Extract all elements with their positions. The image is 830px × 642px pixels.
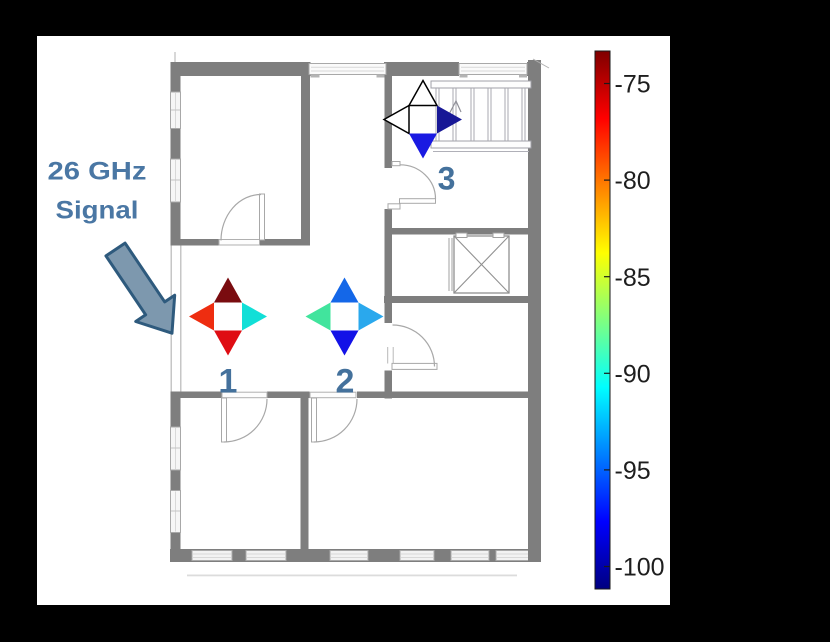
svg-text:-100: -100 [615, 554, 665, 582]
svg-text:26 GHz: 26 GHz [48, 158, 147, 186]
svg-text:2: 2 [336, 362, 355, 400]
svg-text:-75: -75 [615, 71, 651, 99]
svg-text:1: 1 [219, 362, 238, 400]
svg-text:-80: -80 [615, 167, 651, 195]
svg-text:-85: -85 [615, 264, 651, 292]
svg-text:-95: -95 [615, 457, 651, 485]
svg-text:-90: -90 [615, 360, 651, 388]
svg-text:Signal: Signal [56, 197, 139, 225]
svg-text:3: 3 [438, 161, 456, 197]
